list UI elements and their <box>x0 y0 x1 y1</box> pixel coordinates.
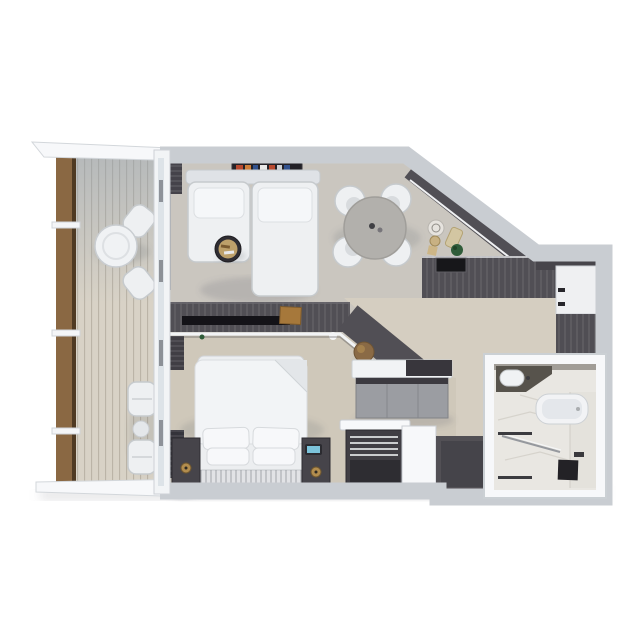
floor-plan-render <box>0 0 640 640</box>
woven-tray <box>219 240 238 259</box>
bistro-table <box>95 225 137 267</box>
bathroom <box>484 354 606 498</box>
plant-leaf <box>453 246 457 250</box>
tv-panel <box>182 316 290 325</box>
entry-wall-cap <box>340 420 410 430</box>
wood-box <box>280 306 302 324</box>
shower-tray <box>558 460 579 481</box>
lamp-finial <box>315 471 318 474</box>
door-handle <box>558 288 565 292</box>
door-mat-inner <box>441 441 485 487</box>
tub-drain <box>576 407 580 411</box>
round-board <box>430 236 440 246</box>
wood-stool <box>354 342 374 362</box>
desk-drawer-lip <box>356 378 448 384</box>
door-handle <box>558 302 565 306</box>
floor-plan-canvas <box>0 0 640 640</box>
table-grinder <box>369 223 375 229</box>
shower-fixture <box>574 452 584 457</box>
small-plant <box>200 335 205 340</box>
kitchen-sink <box>436 258 466 272</box>
railing-bracket <box>52 222 80 228</box>
dresser-desk <box>352 360 454 429</box>
plant <box>451 244 463 256</box>
plate <box>428 220 444 236</box>
towel-bar <box>498 476 532 479</box>
sofa-left-cushion <box>194 188 244 218</box>
clock-screen <box>307 446 320 453</box>
stool-highlight <box>357 345 365 353</box>
desk-top-dark <box>406 360 452 376</box>
vanity-sink <box>500 370 524 386</box>
sink-faucet <box>526 376 530 380</box>
dining-table <box>344 197 406 259</box>
towel-bar <box>498 432 532 435</box>
railing-bracket <box>52 330 80 336</box>
lamp-finial <box>185 467 188 470</box>
kitchen <box>410 168 556 298</box>
nightstand-left <box>172 438 200 486</box>
sofa-chaise-cushion <box>258 188 312 222</box>
tray-box <box>427 245 438 256</box>
table-item <box>378 228 383 233</box>
railing-inner-edge <box>72 156 76 492</box>
balcony-side-table <box>133 421 149 437</box>
bench-shelf <box>350 460 400 482</box>
partition-wall <box>402 426 436 492</box>
railing-bracket <box>52 428 80 434</box>
